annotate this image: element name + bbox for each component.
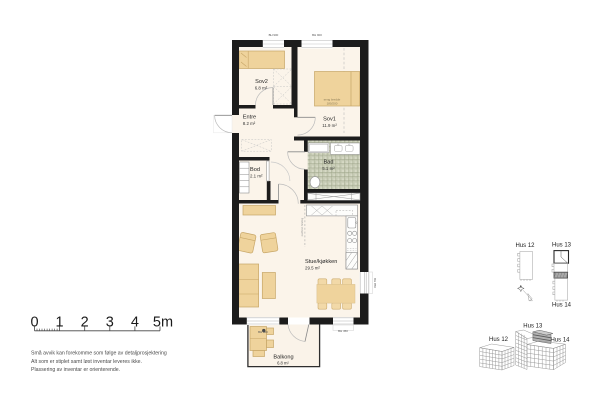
svg-text:Hus 13: Hus 13 — [552, 243, 572, 249]
svg-text:8.2 m²: 8.2 m² — [243, 121, 256, 126]
svg-text:BH 900: BH 900 — [312, 33, 322, 37]
svg-text:2.1 m²: 2.1 m² — [250, 174, 263, 179]
svg-text:BH 900: BH 900 — [258, 330, 268, 334]
svg-text:180/200: 180/200 — [327, 101, 338, 105]
svg-text:Sov1: Sov1 — [323, 117, 336, 123]
svg-text:11.9 m²: 11.9 m² — [322, 123, 337, 128]
svg-text:BH 850: BH 850 — [373, 278, 377, 288]
svg-text:Hus 13: Hus 13 — [523, 324, 543, 330]
svg-text:Plassering av inventar er orie: Plassering av inventar er orienterende. — [31, 367, 120, 373]
svg-text:Stue/kjøkken: Stue/kjøkken — [305, 259, 337, 265]
svg-text:nedforet himling: nedforet himling — [300, 217, 304, 236]
svg-text:BH 450: BH 450 — [338, 329, 348, 333]
svg-text:29.5 m²: 29.5 m² — [305, 266, 320, 271]
svg-text:Entre: Entre — [243, 115, 256, 121]
svg-text:Alt som er stiplet samt løst i: Alt som er stiplet samt løst inventar le… — [31, 359, 142, 365]
svg-text:Hus 14: Hus 14 — [552, 303, 572, 309]
svg-text:Bod: Bod — [250, 167, 260, 173]
svg-text:5.1 m²: 5.1 m² — [322, 166, 335, 171]
svg-text:Bad: Bad — [324, 160, 334, 166]
svg-text:Små avvik kan forekomme som fø: Små avvik kan forekomme som følge av det… — [31, 350, 167, 357]
svg-text:6.8 m²: 6.8 m² — [277, 361, 289, 366]
svg-text:5m: 5m — [153, 315, 173, 331]
svg-text:Hus 12: Hus 12 — [489, 337, 509, 343]
svg-text:6.8 m²: 6.8 m² — [255, 86, 268, 91]
svg-text:BH 900: BH 900 — [269, 33, 279, 37]
svg-text:Hus 12: Hus 12 — [515, 243, 535, 249]
svg-text:Sov2: Sov2 — [255, 79, 268, 85]
